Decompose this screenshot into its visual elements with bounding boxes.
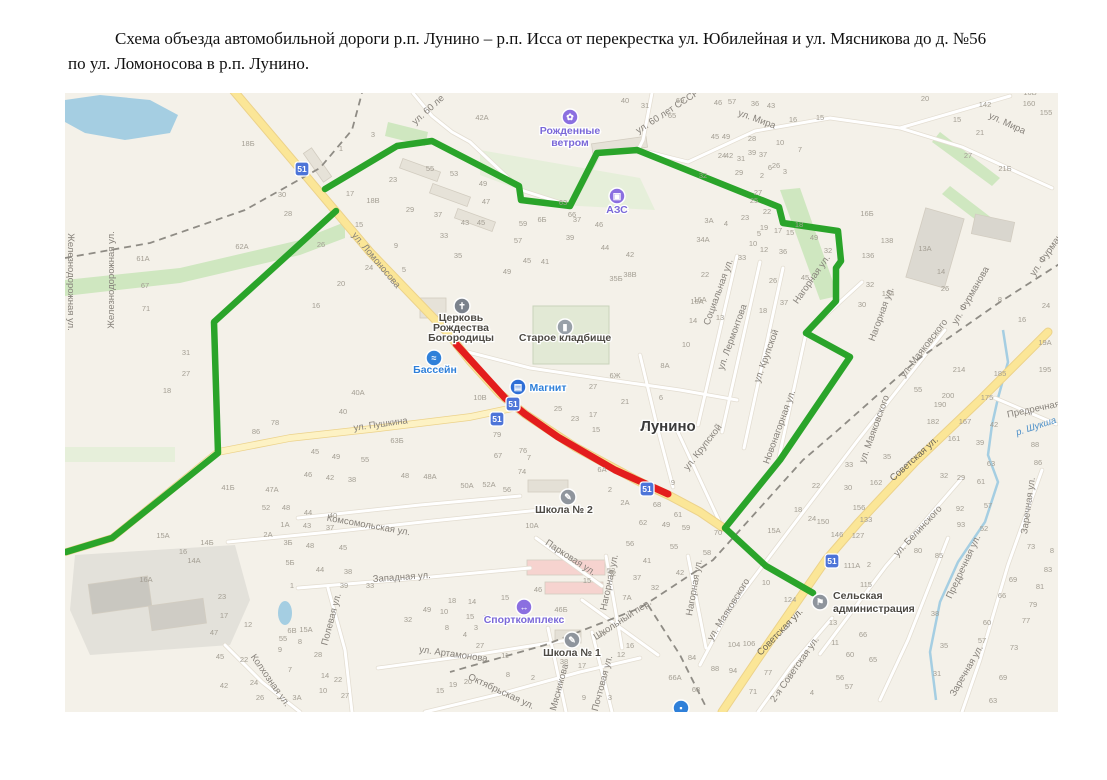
house-number: 23 (218, 592, 226, 601)
house-number: 74 (518, 467, 526, 476)
house-number: 8 (506, 670, 510, 679)
house-number: 20 (337, 279, 345, 288)
house-number: 21 (621, 397, 629, 406)
house-number: 56 (626, 539, 634, 548)
house-number: 12 (760, 245, 768, 254)
house-number: 18 (794, 505, 802, 514)
house-number: 94 (729, 666, 737, 675)
house-number: 8 (445, 623, 449, 632)
house-number: 26 (941, 284, 949, 293)
house-number: 32 (699, 171, 707, 180)
house-number: 86 (1034, 458, 1042, 467)
house-number: 73 (1027, 542, 1035, 551)
house-number: 16 (789, 115, 797, 124)
house-number: 32 (940, 471, 948, 480)
house-number: 42 (676, 568, 684, 577)
house-number: 61А (136, 254, 149, 263)
house-number: 42 (990, 420, 998, 429)
house-number: 3 (474, 623, 478, 632)
house-number: 47 (210, 628, 218, 637)
house-number: 42 (725, 151, 733, 160)
house-number: 78 (271, 418, 279, 427)
house-number: 52 (980, 524, 988, 533)
house-number: 22 (334, 675, 342, 684)
house-number: 27 (182, 369, 190, 378)
house-number: 10 (776, 138, 784, 147)
church-icon-glyph: ✝ (458, 301, 466, 311)
house-number: 10 (440, 607, 448, 616)
house-number: 48А (423, 472, 436, 481)
house-number: 79 (493, 430, 501, 439)
house-number: 26 (256, 693, 264, 702)
house-number: 55 (426, 164, 434, 173)
house-number: 49 (332, 452, 340, 461)
house-number: 45 (801, 273, 809, 282)
house-number: 22 (812, 481, 820, 490)
house-number: 41 (541, 257, 549, 266)
house-number: 104 (728, 640, 741, 649)
house-number: 7А (622, 593, 631, 602)
house-number: 37 (326, 523, 334, 532)
house-number: 27 (964, 151, 972, 160)
house-number: 79 (1029, 600, 1037, 609)
pool-icon-glyph: ≈ (432, 353, 437, 363)
route-shield-label: 51 (297, 164, 307, 174)
house-number: 156 (853, 503, 866, 512)
house-number: 45 (216, 652, 224, 661)
house-number: 17 (774, 226, 782, 235)
house-number: 34А (696, 235, 709, 244)
house-number: 27 (599, 629, 607, 638)
house-number: 14 (937, 267, 945, 276)
house-number: 33 (738, 253, 746, 262)
route-shield-label: 51 (642, 484, 652, 494)
building (545, 582, 603, 594)
street-label: Железнодорожная ул. (106, 231, 117, 329)
house-number: 40 (329, 511, 337, 520)
house-number: 49 (810, 233, 818, 242)
house-number: 62 (639, 518, 647, 527)
house-number: 69 (999, 673, 1007, 682)
house-number: 52 (607, 566, 615, 575)
house-number: 67 (494, 451, 502, 460)
house-number: 92 (956, 504, 964, 513)
house-number: 14 (321, 671, 329, 680)
house-number: 10В (473, 393, 486, 402)
house-number: 83 (1044, 565, 1052, 574)
green-area (65, 447, 175, 462)
house-number: 13А (918, 244, 931, 253)
house-number: 17 (346, 189, 354, 198)
house-number: 136 (862, 251, 875, 260)
house-number: 12 (244, 620, 252, 629)
house-number: 8 (1050, 546, 1054, 555)
house-number: 59 (519, 219, 527, 228)
house-number: 4 (463, 630, 467, 639)
house-number: 62А (235, 242, 248, 251)
house-number: 57 (984, 501, 992, 510)
house-number: 33 (366, 581, 374, 590)
poi-magnit: ▤Магнит (510, 379, 567, 395)
house-number: 22 (240, 655, 248, 664)
house-number: 49 (662, 520, 670, 529)
house-number: 15 (816, 113, 824, 122)
house-number: 26 (769, 276, 777, 285)
house-number: 18 (759, 306, 767, 315)
house-number: 31 (641, 101, 649, 110)
house-number: 50А (460, 481, 473, 490)
house-number: 46 (534, 585, 542, 594)
house-number: 190 (934, 400, 947, 409)
house-number: 19 (760, 223, 768, 232)
house-number: 86 (252, 427, 260, 436)
house-number: 19А (1038, 338, 1051, 347)
house-number: 46 (595, 220, 603, 229)
house-number: 36 (779, 247, 787, 256)
map-canvas: 5151515151ул. 60 леул. 60 лет СССРул. Ми… (0, 0, 1107, 775)
house-number: 8А (660, 361, 669, 370)
house-number: 66 (859, 630, 867, 639)
house-number: 2 (867, 560, 871, 569)
house-number: 16 (312, 301, 320, 310)
poi-label: АЗС (606, 204, 628, 216)
house-number: 44 (316, 565, 324, 574)
house-number: 32 (824, 246, 832, 255)
house-number: 81 (1036, 582, 1044, 591)
house-number: 15А (299, 625, 312, 634)
sportkompleks-icon-glyph: ↔ (520, 602, 529, 612)
house-number: 45 (311, 447, 319, 456)
house-number: 200 (942, 391, 955, 400)
house-number: 16 (1018, 315, 1026, 324)
house-number: 25 (554, 404, 562, 413)
house-number: 53 (450, 169, 458, 178)
house-number: 17 (578, 661, 586, 670)
poi-label: администрация (833, 603, 915, 615)
house-number: 15 (953, 115, 961, 124)
house-number: 35Б (609, 274, 622, 283)
house-number: 14А (187, 556, 200, 565)
house-number: 40А (351, 388, 364, 397)
house-number: 63 (987, 459, 995, 468)
house-number: 22 (763, 207, 771, 216)
route-shield: 51 (295, 162, 309, 176)
house-number: 80 (914, 546, 922, 555)
house-number: 42А (475, 113, 488, 122)
house-number: 23 (389, 175, 397, 184)
house-number: 16Б (860, 209, 873, 218)
house-number: 41Б (221, 483, 234, 492)
house-number: 15 (436, 686, 444, 695)
house-number: 39 (976, 438, 984, 447)
house-number: 69 (1009, 575, 1017, 584)
house-number: 47 (482, 197, 490, 206)
house-number: 57 (978, 636, 986, 645)
house-number: 68 (653, 500, 661, 509)
house-number: 16Б (1023, 88, 1036, 97)
house-number: 26 (772, 161, 780, 170)
house-number: 88 (711, 664, 719, 673)
house-number: 29 (735, 168, 743, 177)
old-cemetery-icon-glyph: ▮ (563, 322, 568, 332)
house-number: 30 (844, 483, 852, 492)
house-number: 65 (869, 655, 877, 664)
house-number: 6Ж (609, 371, 620, 380)
route-shield: 51 (490, 412, 504, 426)
house-number: 45 (523, 256, 531, 265)
detour-map: 5151515151ул. 60 леул. 60 лет СССРул. Ми… (0, 0, 1107, 775)
house-number: 63Б (390, 436, 403, 445)
house-number: 10 (762, 578, 770, 587)
house-number: 13 (716, 313, 724, 322)
house-number: 3Б (283, 538, 292, 547)
house-number: 43 (303, 521, 311, 530)
house-number: 58 (703, 548, 711, 557)
rozhdennye-vetrom-icon-glyph: ✿ (566, 112, 574, 122)
house-number: 7 (798, 145, 802, 154)
house-number: 32 (866, 280, 874, 289)
house-number: 49 (503, 267, 511, 276)
house-number: 33 (440, 231, 448, 240)
poi-label: Спорткомплекс (484, 614, 565, 626)
house-number: 39 (566, 233, 574, 242)
house-number: 45 (711, 132, 719, 141)
house-number: 69 (676, 96, 684, 105)
house-number: 24 (250, 678, 258, 687)
house-number: 111А (844, 561, 860, 570)
house-number: 4 (724, 219, 728, 228)
house-number: 146 (831, 530, 844, 539)
house-number: 26 (317, 240, 325, 249)
house-number: 28 (284, 209, 292, 218)
house-number: 68 (692, 685, 700, 694)
poi-label: Бассейн (413, 364, 457, 376)
house-number: 31 (182, 348, 190, 357)
house-number: 55 (279, 634, 287, 643)
house-number: 15А (156, 531, 169, 540)
house-number: 5Б (285, 558, 294, 567)
house-number: 25 (750, 196, 758, 205)
house-number: 47А (265, 485, 278, 494)
house-number: 106 (743, 639, 756, 648)
poi-label: Сельская (833, 590, 883, 602)
house-number: 65 (668, 111, 676, 120)
house-number: 48 (282, 503, 290, 512)
house-number: 9 (394, 241, 398, 250)
house-number: 18 (163, 386, 171, 395)
house-number: 36 (751, 99, 759, 108)
house-number: 24 (808, 514, 816, 523)
house-number: 4 (810, 688, 814, 697)
building (528, 480, 568, 492)
house-number: 70 (714, 528, 722, 537)
house-number: 16 (626, 641, 634, 650)
house-number: 37 (434, 210, 442, 219)
house-number: 49 (423, 605, 431, 614)
house-number: 14Б (200, 538, 213, 547)
house-number: 1 (339, 144, 343, 153)
house-number: 56 (503, 485, 511, 494)
house-number: 160 (1023, 99, 1036, 108)
house-number: 7 (527, 453, 531, 462)
house-number: 31 (933, 669, 941, 678)
house-number: 17 (589, 410, 597, 419)
house-number: 15 (501, 593, 509, 602)
house-number: 45 (339, 543, 347, 552)
house-number: 57 (728, 97, 736, 106)
house-number: 214 (953, 365, 966, 374)
house-number: 10 (682, 340, 690, 349)
house-number: 17 (220, 611, 228, 620)
house-number: 37 (633, 573, 641, 582)
house-number: 167 (959, 417, 972, 426)
house-number: 13 (829, 618, 837, 627)
house-number: 2 (608, 485, 612, 494)
house-number: 93 (957, 520, 965, 529)
poi-label: Магнит (529, 382, 566, 394)
street-label: Железнодорожная ул. (65, 233, 76, 331)
house-number: 182 (927, 417, 940, 426)
house-number: 3 (608, 693, 612, 702)
poi-label: Старое кладбище (519, 332, 612, 344)
house-number: 11 (501, 651, 509, 660)
shop-icon-glyph: ▪ (679, 703, 682, 713)
house-number: 55 (914, 385, 922, 394)
house-number: 24 (365, 263, 373, 272)
house-number: 15 (592, 425, 600, 434)
house-number: 60 (983, 618, 991, 627)
house-number: 1А (280, 520, 289, 529)
house-number: 40 (339, 407, 347, 416)
house-number: 40 (621, 96, 629, 105)
house-number: 2А (263, 530, 272, 539)
house-number: 31 (737, 154, 745, 163)
house-number: 3 (371, 130, 375, 139)
house-number: 71 (142, 304, 150, 313)
house-number: 14 (689, 316, 697, 325)
house-number: 16 (179, 547, 187, 556)
house-number: 55 (361, 455, 369, 464)
house-number: 60 (846, 650, 854, 659)
house-number: 1 (290, 581, 294, 590)
house-number: 115 (860, 580, 872, 589)
house-number: 55 (670, 542, 678, 551)
house-number: 124 (784, 595, 797, 604)
house-number: 22 (701, 270, 709, 279)
house-number: 76 (519, 446, 527, 455)
house-number: 85 (935, 551, 943, 560)
house-number: 3А (704, 216, 713, 225)
house-number: 27 (589, 382, 597, 391)
house-number: 67 (141, 281, 149, 290)
house-number: 35 (454, 251, 462, 260)
house-number: 9 (671, 478, 675, 487)
house-number: 14 (468, 597, 476, 606)
house-number: 9 (582, 693, 586, 702)
house-number: 63 (989, 696, 997, 705)
house-number: 18 (795, 220, 803, 229)
house-number: 27 (476, 641, 484, 650)
house-number: 63 (559, 198, 567, 207)
house-number: 3 (783, 167, 787, 176)
house-number: 3А (292, 693, 301, 702)
poi-label: ветром (551, 137, 589, 149)
pond (278, 601, 292, 625)
house-number: 20 (464, 677, 472, 686)
house-number: 5 (402, 265, 406, 274)
house-number: 42 (626, 250, 634, 259)
map-layers: 5151515151ул. 60 леул. 60 лет СССРул. Ми… (65, 87, 1092, 716)
house-number: 46 (304, 470, 312, 479)
azs-icon-glyph: ▣ (613, 191, 622, 201)
house-number: 49 (479, 179, 487, 188)
house-number: 29 (406, 205, 414, 214)
house-number: 32 (651, 583, 659, 592)
house-number: 23 (571, 414, 579, 423)
house-number: 21 (976, 128, 984, 137)
house-number: 33 (845, 460, 853, 469)
house-number: 59 (682, 523, 690, 532)
house-number: 142 (979, 100, 992, 109)
house-number: 8 (298, 637, 302, 646)
route-shield: 51 (506, 397, 520, 411)
house-number: 46Б (554, 605, 567, 614)
route-shield-label: 51 (492, 414, 502, 424)
house-number: 61 (977, 477, 985, 486)
house-number: 56 (836, 673, 844, 682)
house-number: 52 (262, 503, 270, 512)
route-shield: 51 (640, 482, 654, 496)
house-number: 24 (1042, 301, 1050, 310)
house-number: 38 (348, 475, 356, 484)
house-number: 9 (278, 645, 282, 654)
house-number: 84 (688, 653, 696, 662)
house-number: 138 (881, 236, 894, 245)
house-number: 37 (759, 150, 767, 159)
house-number: 35 (940, 641, 948, 650)
house-number: 44 (601, 243, 609, 252)
house-number: 16А (139, 575, 152, 584)
house-number: 15 (466, 612, 474, 621)
poi-label: Школа № 1 (543, 647, 601, 659)
house-number: 6Б (537, 215, 546, 224)
house-number: 19 (449, 680, 457, 689)
house-number: 48 (401, 471, 409, 480)
route-shield-label: 51 (827, 556, 837, 566)
house-number: 48 (306, 541, 314, 550)
house-number: 20 (921, 94, 929, 103)
house-number: 44 (304, 508, 312, 517)
house-number: 6А (597, 465, 606, 474)
house-number: 6 (659, 393, 663, 402)
poi-shop: ▪ (673, 700, 689, 716)
house-number: 28 (314, 650, 322, 659)
house-number: 150 (817, 517, 830, 526)
house-number: 127 (852, 531, 865, 540)
house-number: 30 (858, 300, 866, 309)
house-number: 11 (831, 638, 839, 647)
house-number: 43 (767, 101, 775, 110)
house-number: 38В (623, 270, 636, 279)
house-number: 39 (748, 148, 756, 157)
house-number: 18 (448, 596, 456, 605)
house-number: 21Б (998, 164, 1011, 173)
house-number: 161 (948, 434, 961, 443)
house-number: 133 (860, 515, 873, 524)
house-number: 61 (674, 510, 682, 519)
house-number: 88 (1031, 440, 1039, 449)
house-number: 27 (341, 691, 349, 700)
